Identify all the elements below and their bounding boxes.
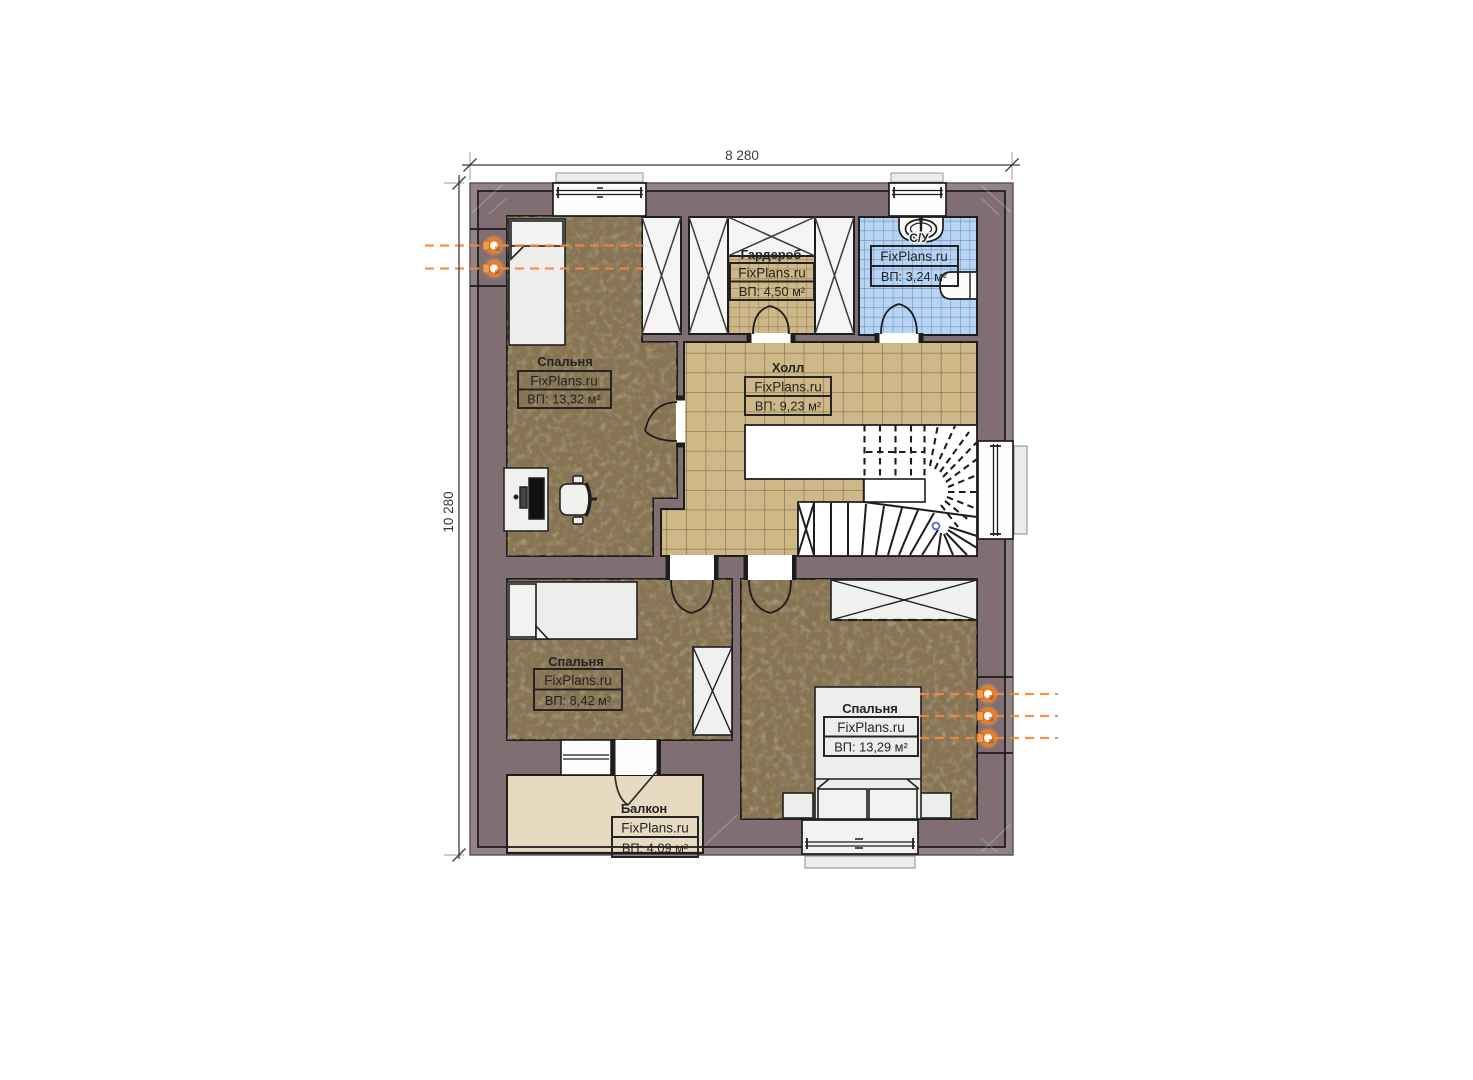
svg-text:ВП: 4,09 м²: ВП: 4,09 м² [622, 841, 689, 856]
svg-text:ВП: 9,23 м²: ВП: 9,23 м² [755, 399, 822, 414]
svg-text:ВП: 4,50 м²: ВП: 4,50 м² [739, 284, 806, 299]
svg-text:ВП: 3,24 м²: ВП: 3,24 м² [881, 269, 948, 284]
svg-text:Спальня: Спальня [537, 354, 592, 369]
svg-text:FixPlans.ru: FixPlans.ru [837, 720, 905, 735]
svg-text:Холл: Холл [772, 360, 804, 375]
svg-text:FixPlans.ru: FixPlans.ru [754, 380, 822, 395]
svg-text:FixPlans.ru: FixPlans.ru [880, 249, 948, 264]
svg-text:ВП: 8,42 м²: ВП: 8,42 м² [545, 693, 612, 708]
svg-text:Балкон: Балкон [621, 801, 667, 816]
svg-text:Спальня: Спальня [842, 701, 897, 716]
svg-text:ВП: 13,32 м²: ВП: 13,32 м² [527, 392, 601, 407]
svg-text:Спальня: Спальня [548, 654, 603, 669]
svg-text:ВП: 13,29 м²: ВП: 13,29 м² [834, 740, 908, 755]
svg-text:10 280: 10 280 [441, 491, 456, 532]
svg-text:FixPlans.ru: FixPlans.ru [544, 673, 612, 688]
svg-text:8 280: 8 280 [725, 148, 759, 163]
svg-text:С/У: С/У [909, 231, 929, 245]
svg-text:FixPlans.ru: FixPlans.ru [621, 821, 689, 836]
svg-text:FixPlans.ru: FixPlans.ru [530, 374, 598, 389]
svg-text:FixPlans.ru: FixPlans.ru [738, 266, 806, 281]
svg-text:Гардероб: Гардероб [741, 247, 802, 262]
